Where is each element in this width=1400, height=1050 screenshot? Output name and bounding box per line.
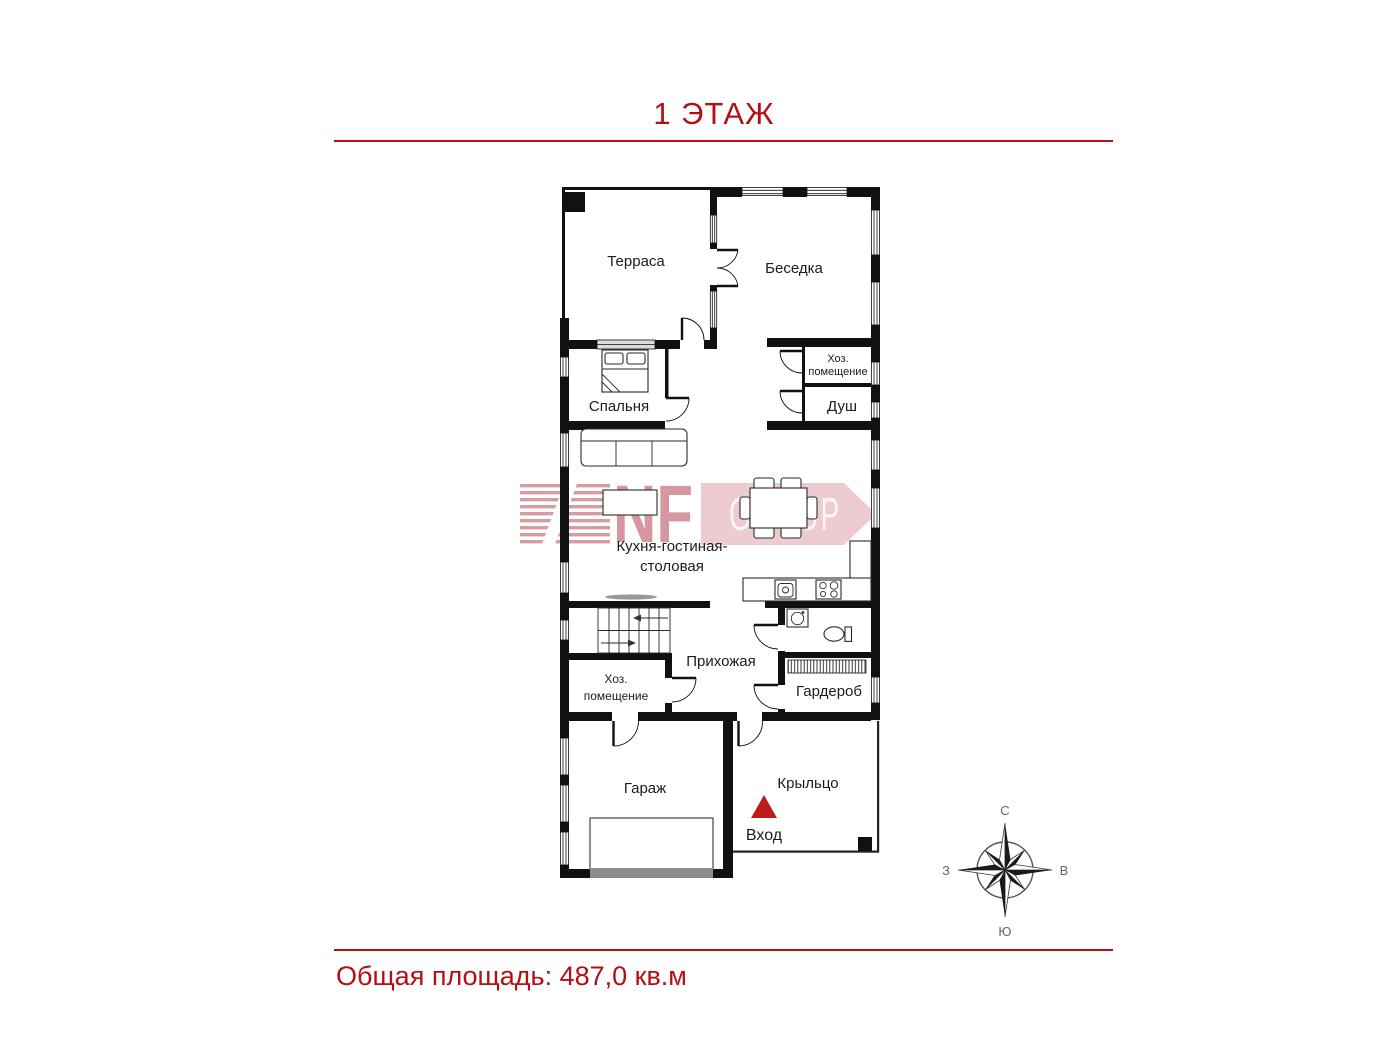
tv-icon	[605, 594, 657, 599]
bed-icon	[602, 350, 648, 392]
room-label-kitchen-living-line2: столовая	[640, 558, 704, 575]
total-area-label: Общая площадь: 487,0 кв.м	[336, 961, 687, 992]
window-icon	[871, 282, 879, 325]
window-icon	[560, 785, 568, 822]
room-label-utility-top-line2: помещение	[808, 366, 867, 378]
room-label-utility-top-line1: Хоз.	[827, 353, 848, 365]
window-icon	[871, 402, 879, 418]
room-label-gazebo: Беседка	[765, 260, 823, 277]
window-icon	[871, 362, 879, 385]
window-icon	[560, 738, 568, 775]
window-icon	[807, 187, 847, 195]
frosted-window-icon	[597, 340, 655, 349]
top-divider-line	[334, 140, 1113, 142]
toilet-icon	[824, 627, 852, 642]
window-icon	[871, 677, 879, 703]
compass-east-label: В	[1060, 863, 1069, 878]
kitchen-counter-icon	[743, 541, 871, 601]
window-icon	[560, 832, 568, 865]
compass-cardinal-points	[958, 823, 1052, 917]
entrance-label: Вход	[746, 827, 783, 844]
window-icon	[871, 488, 879, 528]
compass-rose: С Ю З В	[935, 797, 1075, 945]
window-icon	[871, 210, 879, 255]
page-title: 1 ЭТАЖ	[334, 96, 1094, 132]
stove-icon	[816, 580, 841, 599]
page: 1 ЭТАЖ NF GROUP	[0, 0, 1400, 1050]
window-icon	[871, 440, 879, 470]
room-label-terrace: Терраса	[607, 253, 665, 270]
room-label-bedroom: Спальня	[589, 398, 649, 415]
window-icon	[742, 187, 783, 195]
stairs-icon	[598, 608, 670, 653]
coffee-table-icon	[603, 490, 657, 515]
room-label-hallway: Прихожая	[686, 653, 756, 670]
compass-west-label: З	[942, 863, 950, 878]
window-icon	[710, 291, 716, 328]
room-label-utility-bottom-line2: помещение	[584, 689, 649, 703]
compass-south-label: Ю	[998, 924, 1011, 939]
window-icon	[710, 215, 716, 243]
entrance-arrow-icon	[751, 795, 777, 818]
window-icon	[560, 620, 568, 640]
room-label-utility-bottom-line1: Хоз.	[604, 672, 627, 686]
room-label-kitchen-living-line1: Кухня-гостиная-	[616, 538, 727, 555]
room-label-porch: Крыльцо	[777, 775, 838, 792]
kitchen-sink-icon	[775, 580, 796, 599]
bottom-divider-line	[334, 949, 1113, 951]
sofa-icon	[581, 429, 687, 466]
room-label-garage: Гараж	[624, 780, 666, 797]
floor-plan: NF GROUP	[505, 178, 890, 888]
wardrobe-shelving-icon	[788, 660, 866, 673]
window-icon	[560, 562, 568, 593]
room-label-wardrobe: Гардероб	[796, 683, 862, 700]
room-label-shower: Душ	[827, 398, 857, 415]
window-icon	[560, 433, 568, 467]
window-icon	[560, 357, 568, 377]
bathroom-sink-icon	[787, 609, 808, 627]
garage-door-icon	[590, 818, 713, 878]
compass-north-label: С	[1000, 803, 1009, 818]
